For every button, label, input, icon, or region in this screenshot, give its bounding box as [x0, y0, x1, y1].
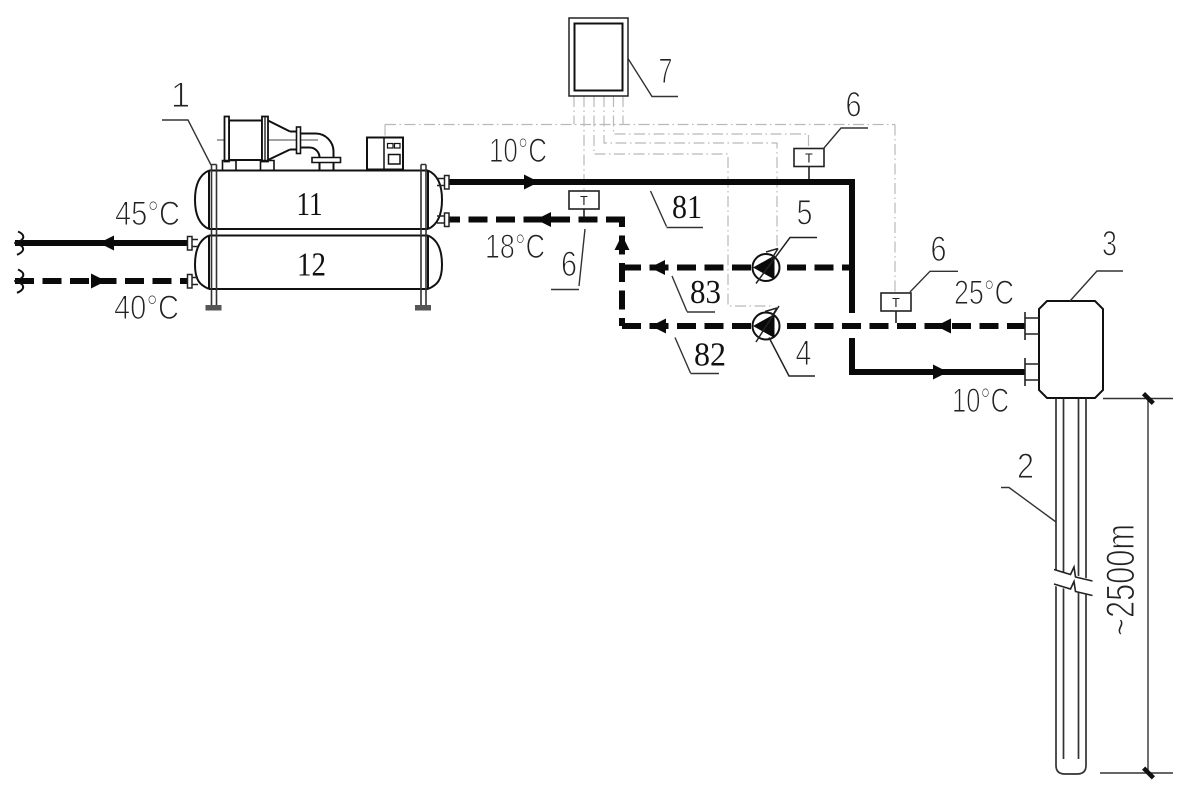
svg-text:83: 83 [690, 274, 721, 311]
svg-text:2: 2 [1017, 447, 1034, 486]
svg-text:T: T [805, 152, 813, 166]
svg-text:6: 6 [846, 86, 862, 125]
svg-text:T: T [892, 296, 900, 310]
svg-text:11: 11 [297, 186, 323, 223]
svg-text:6: 6 [561, 245, 577, 284]
svg-text:18°C: 18°C [485, 228, 545, 266]
svg-text:25°C: 25°C [954, 274, 1014, 312]
svg-text:81: 81 [672, 189, 702, 226]
svg-text:10°C: 10°C [952, 382, 1009, 420]
svg-text:3: 3 [1102, 225, 1117, 264]
svg-text:T: T [580, 194, 588, 208]
svg-text:7: 7 [659, 52, 673, 91]
svg-text:4: 4 [796, 334, 812, 373]
svg-text:10°C: 10°C [489, 132, 547, 170]
svg-text:45°C: 45°C [115, 195, 180, 233]
svg-text:12: 12 [297, 247, 326, 284]
svg-text:6: 6 [931, 230, 947, 269]
svg-text:~2500m: ~2500m [1099, 524, 1143, 636]
svg-text:82: 82 [694, 337, 726, 374]
svg-text:40°C: 40°C [114, 289, 179, 327]
svg-text:1: 1 [171, 76, 190, 115]
svg-text:5: 5 [797, 194, 813, 233]
